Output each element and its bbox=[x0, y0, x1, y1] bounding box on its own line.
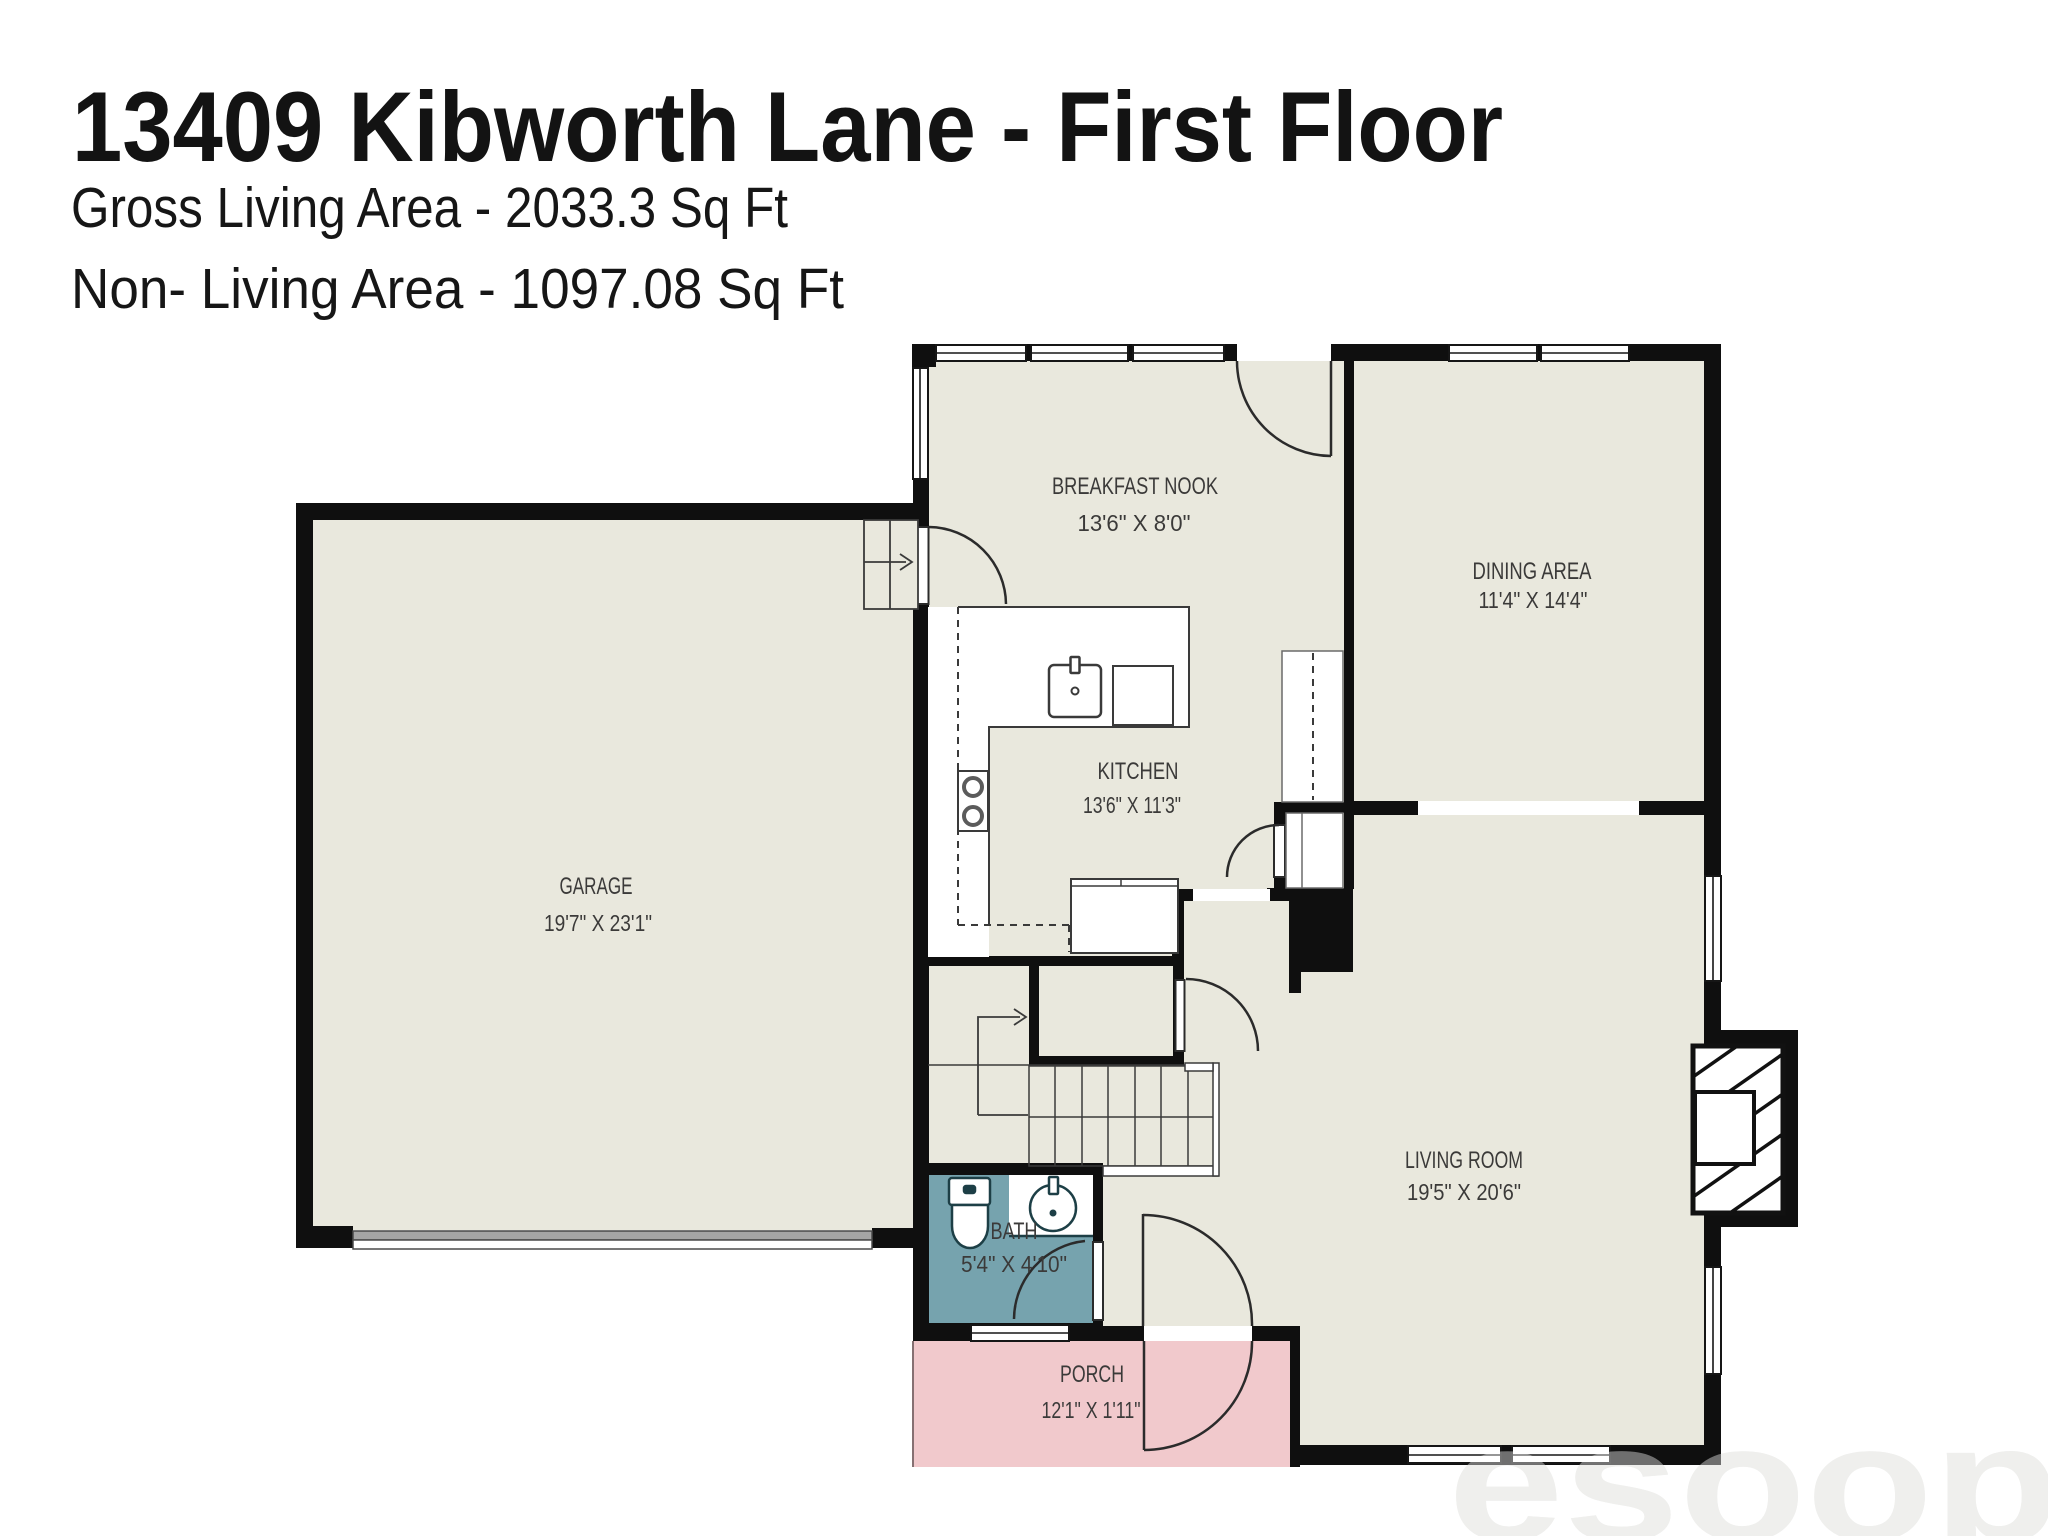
svg-text:19'7" X 23'1": 19'7" X 23'1" bbox=[544, 910, 652, 936]
svg-text:12'1" X 1'11": 12'1" X 1'11" bbox=[1042, 1397, 1141, 1423]
svg-text:13'6" X 11'3": 13'6" X 11'3" bbox=[1083, 792, 1181, 818]
svg-text:GARAGE: GARAGE bbox=[560, 873, 633, 900]
svg-text:Gross Living Area - 2033.3 Sq: Gross Living Area - 2033.3 Sq Ft bbox=[71, 176, 788, 240]
svg-text:13409 Kibworth Lane - First Fl: 13409 Kibworth Lane - First Floor bbox=[72, 71, 1503, 182]
svg-text:5'4" X 4'10": 5'4" X 4'10" bbox=[961, 1251, 1067, 1277]
svg-text:BREAKFAST NOOK: BREAKFAST NOOK bbox=[1052, 473, 1218, 500]
svg-text:13'6" X 8'0": 13'6" X 8'0" bbox=[1078, 510, 1191, 536]
svg-text:LIVING ROOM: LIVING ROOM bbox=[1405, 1147, 1523, 1174]
svg-text:BATH: BATH bbox=[991, 1218, 1038, 1245]
svg-text:11'4" X 14'4": 11'4" X 14'4" bbox=[1479, 587, 1588, 613]
svg-text:DINING AREA: DINING AREA bbox=[1473, 558, 1592, 585]
svg-text:19'5" X 20'6": 19'5" X 20'6" bbox=[1407, 1179, 1521, 1205]
svg-text:Non- Living Area - 1097.08 Sq: Non- Living Area - 1097.08 Sq Ft bbox=[71, 257, 844, 321]
svg-text:PORCH: PORCH bbox=[1060, 1361, 1124, 1388]
svg-text:KITCHEN: KITCHEN bbox=[1098, 758, 1179, 785]
svg-text:esoop: esoop bbox=[1448, 1391, 2048, 1536]
